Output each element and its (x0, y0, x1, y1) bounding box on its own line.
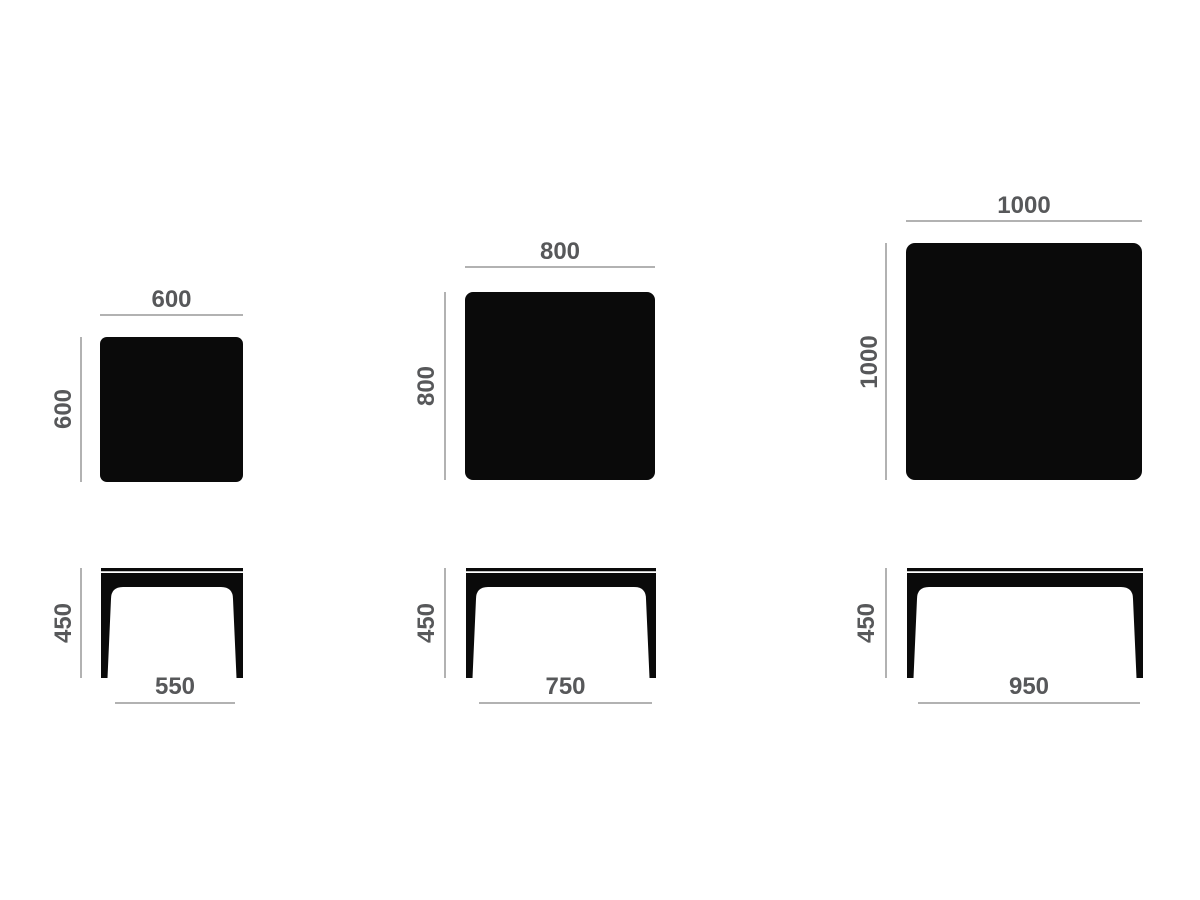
height-dimension-label: 450 (853, 563, 881, 683)
leg-span-dimension-line (115, 702, 235, 704)
dimension-diagram: 600 600 450 550 800 800 450 750 1000 (0, 0, 1200, 900)
table-top-view (465, 292, 655, 480)
table-side-view (101, 568, 243, 678)
depth-dimension-label: 600 (50, 349, 78, 469)
depth-dimension-label: 1000 (856, 302, 884, 422)
width-dimension-line (465, 266, 655, 268)
depth-dimension-label: 800 (413, 326, 441, 446)
depth-dimension-line (444, 292, 446, 480)
height-dimension-line (80, 568, 82, 678)
leg-span-dimension-label: 550 (115, 673, 235, 701)
leg-span-dimension-label: 750 (479, 673, 652, 701)
height-dimension-label: 450 (50, 563, 78, 683)
width-dimension-label: 1000 (906, 192, 1142, 220)
height-dimension-line (444, 568, 446, 678)
leg-span-dimension-line (918, 702, 1140, 704)
height-dimension-line (885, 568, 887, 678)
depth-dimension-line (80, 337, 82, 482)
leg-span-dimension-label: 950 (918, 673, 1140, 701)
height-dimension-label: 450 (413, 563, 441, 683)
width-dimension-label: 600 (100, 286, 243, 314)
table-top-view (906, 243, 1142, 480)
leg-span-dimension-line (479, 702, 652, 704)
depth-dimension-line (885, 243, 887, 480)
table-side-view (907, 568, 1143, 678)
width-dimension-line (906, 220, 1142, 222)
width-dimension-label: 800 (465, 238, 655, 266)
width-dimension-line (100, 314, 243, 316)
table-side-view (466, 568, 656, 678)
table-top-view (100, 337, 243, 482)
